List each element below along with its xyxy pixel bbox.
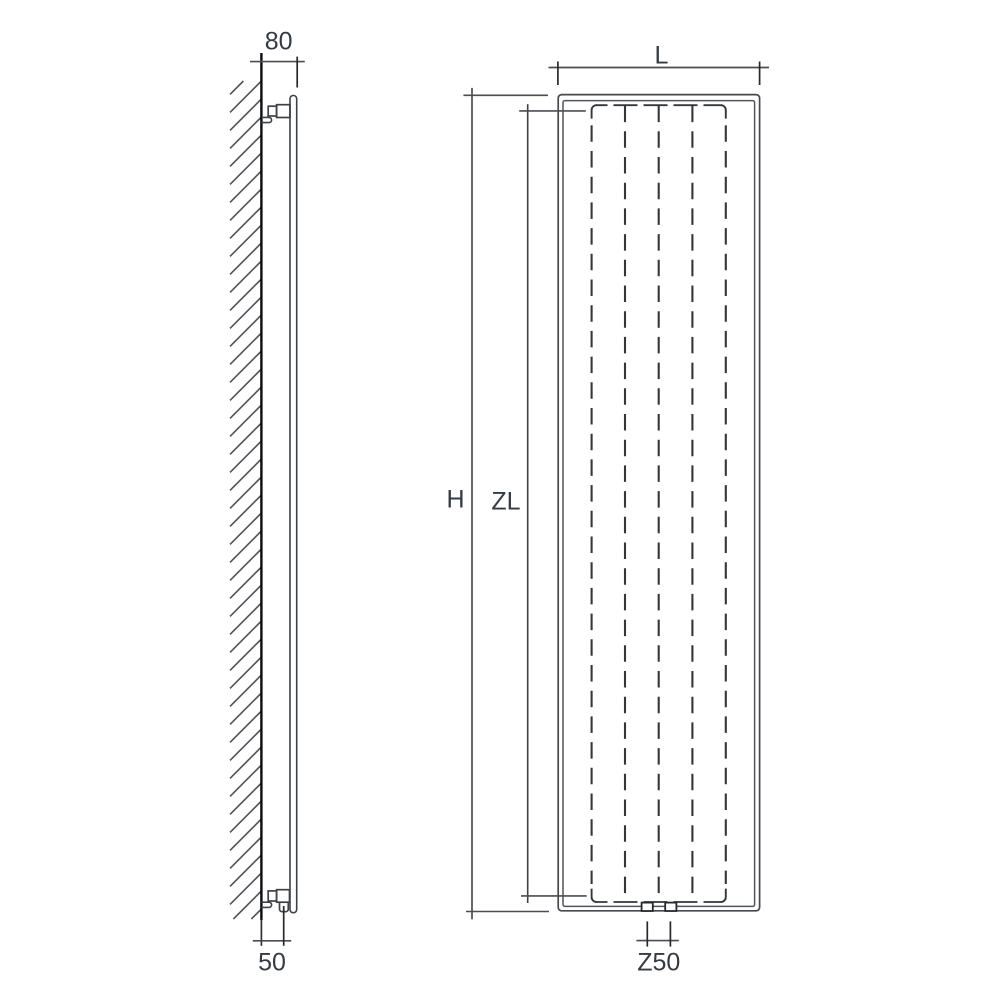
svg-text:80: 80: [265, 28, 293, 56]
svg-text:Z50: Z50: [637, 949, 680, 977]
svg-text:L: L: [655, 42, 669, 70]
svg-text:H: H: [446, 486, 464, 514]
svg-text:50: 50: [258, 949, 286, 977]
svg-text:ZL: ZL: [491, 488, 520, 516]
